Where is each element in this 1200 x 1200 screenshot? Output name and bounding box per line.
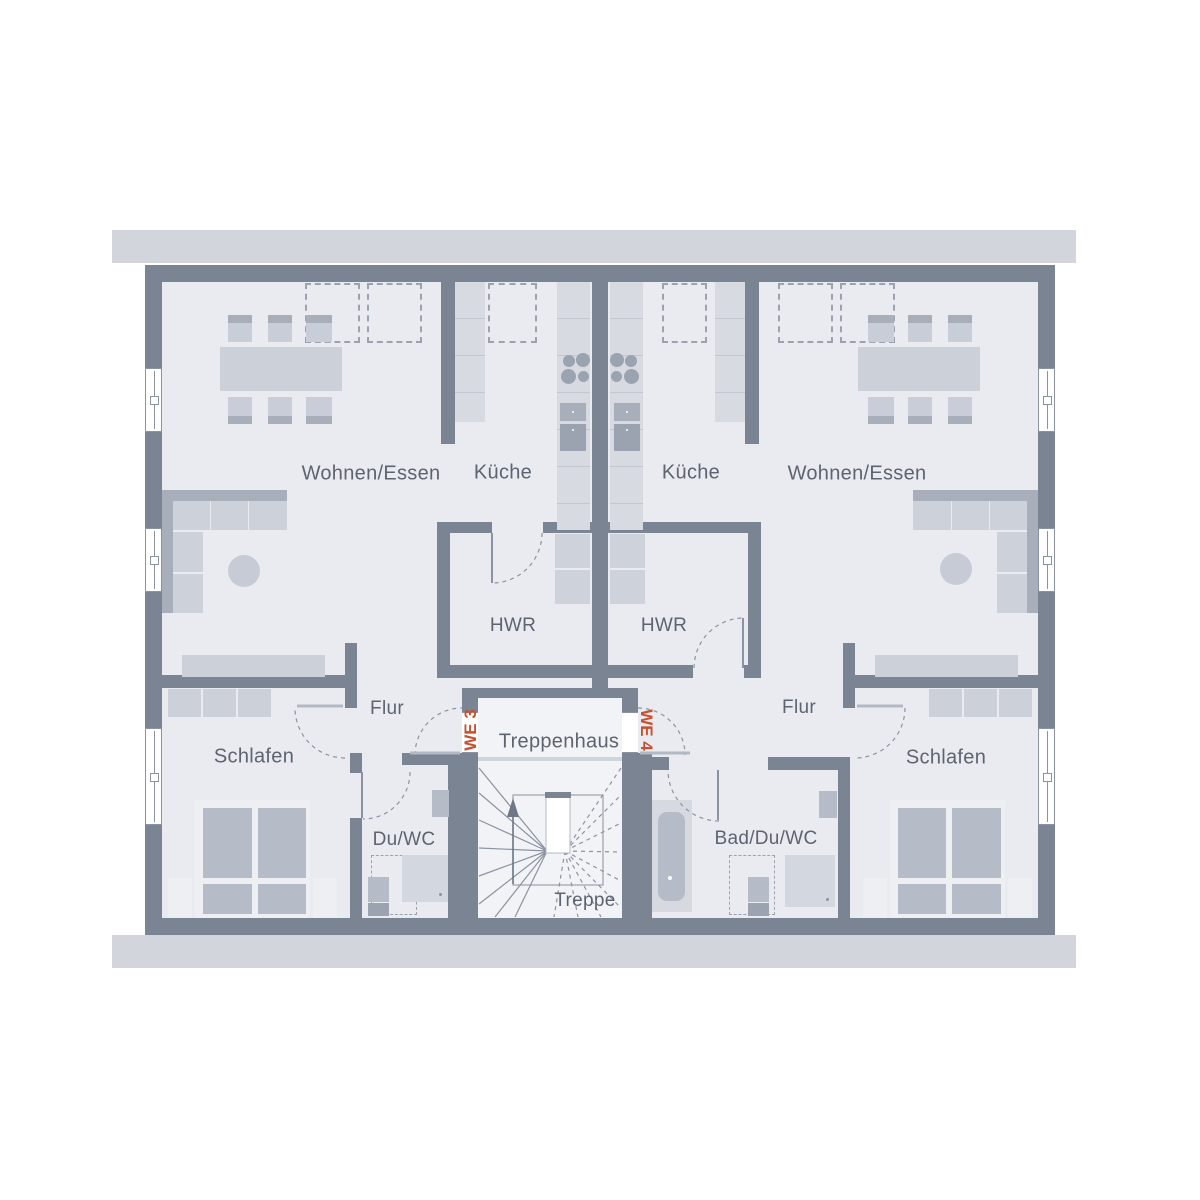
cooktop-burner-icon	[625, 355, 637, 367]
roof-window-icon	[662, 283, 707, 343]
window	[145, 728, 162, 825]
dryer	[610, 570, 645, 604]
unit-label-we4: WE 4	[636, 709, 656, 751]
room-label-bedroom-we4: Schlafen	[906, 747, 986, 770]
sofa-backrest	[1027, 501, 1038, 613]
kitchen-partition-we4	[745, 282, 759, 444]
outer-wall-right	[1038, 265, 1055, 935]
stair-landing-edge	[478, 757, 622, 761]
dining-chair	[908, 315, 932, 342]
outer-wall-left	[145, 265, 162, 935]
coffee-table	[228, 555, 260, 587]
toilet-bowl	[368, 903, 389, 916]
room-label-stairwell: Treppenhaus	[499, 731, 619, 754]
cooktop-burner-icon	[624, 369, 639, 384]
mattress-panel	[203, 808, 252, 878]
dining-chair	[948, 315, 972, 342]
bathtub-drain-icon	[668, 876, 672, 880]
sofa-cushion	[173, 501, 210, 530]
roof-window-icon	[367, 283, 422, 343]
hwr-we3-wall-bottom	[437, 665, 592, 678]
nightstand	[313, 878, 337, 918]
hwr-we4-wall-bottom-a	[592, 665, 693, 678]
kitchen-counter	[455, 282, 485, 422]
toilet-cistern	[368, 877, 389, 902]
stairwell-wall-left	[448, 753, 478, 918]
window	[1038, 528, 1055, 592]
mattress-panel	[952, 808, 1001, 878]
dining-chair	[306, 397, 332, 424]
roof-window-icon	[778, 283, 833, 343]
dining-chair	[868, 315, 894, 342]
bath-we3-wall-left-b	[350, 818, 362, 918]
room-label-utility-we3: HWR	[490, 615, 536, 637]
washer	[555, 534, 590, 568]
outer-wall-top	[145, 265, 1055, 282]
cooktop-burner-icon	[610, 353, 624, 367]
wardrobe	[929, 689, 962, 717]
sofa-cushion	[997, 532, 1027, 572]
bath-we4-wall-top-a	[652, 757, 669, 770]
sofa-cushion	[990, 501, 1027, 530]
wardrobe	[999, 689, 1032, 717]
sofa-cushion	[913, 501, 951, 530]
oven-drawer	[560, 403, 586, 421]
cooktop-burner-icon	[561, 369, 576, 384]
room-label-living-we4: Wohnen/Essen	[788, 463, 927, 486]
sofa-cushion	[211, 501, 248, 530]
nightstand	[863, 878, 887, 918]
roof-edge-bottom	[112, 935, 1076, 968]
dining-chair	[868, 397, 894, 424]
wardrobe	[203, 689, 236, 717]
kitchen-partition-we3	[441, 282, 455, 444]
wardrobe	[964, 689, 997, 717]
kitchen-counter	[715, 282, 745, 422]
mattress-panel	[258, 808, 306, 878]
washbasin	[819, 791, 837, 818]
oven-drawer	[614, 403, 640, 421]
toilet-bowl	[748, 903, 769, 916]
hwr-we4-wall-bottom-b	[744, 665, 761, 678]
dining-table	[220, 347, 342, 391]
room-label-living-we3: Wohnen/Essen	[302, 463, 441, 486]
shower-tray	[785, 855, 835, 907]
hall-wall-stub-we4	[843, 643, 855, 708]
stairwell-wall-right	[622, 753, 652, 918]
room-label-kitchen-we3: Küche	[474, 462, 532, 485]
floor-plan-page: Wohnen/Essen Küche HWR Flur Schlafen Du/…	[0, 0, 1200, 1200]
oven	[614, 424, 640, 451]
washbasin	[432, 790, 449, 817]
room-label-kitchen-we4: Küche	[662, 462, 720, 485]
unit-label-we3: WE 3	[461, 709, 481, 751]
bath-we4-wall-right	[838, 770, 850, 918]
dining-chair	[228, 397, 252, 424]
hwr-we3-wall-top-a	[437, 522, 492, 533]
sofa-cushion	[997, 574, 1027, 613]
bed	[195, 800, 310, 918]
dining-chair	[948, 397, 972, 424]
room-label-hall-we4: Flur	[782, 697, 816, 719]
bed	[890, 800, 1005, 918]
dining-table	[858, 347, 980, 391]
toilet-cistern	[748, 877, 769, 902]
wardrobe	[238, 689, 271, 717]
sofa-backrest	[913, 490, 1038, 501]
bath-we4-wall-top-b	[768, 757, 850, 770]
dining-chair	[268, 315, 292, 342]
sideboard	[875, 655, 1018, 677]
dryer	[555, 570, 590, 604]
cooktop-burner-icon	[578, 371, 589, 382]
hwr-we4-wall-right	[748, 522, 761, 678]
dining-chair	[908, 397, 932, 424]
sofa-backrest	[162, 490, 287, 501]
sofa-backrest	[162, 501, 173, 613]
window	[1038, 368, 1055, 432]
mattress-panel	[898, 808, 946, 878]
bed-foot-panel	[203, 884, 252, 914]
cooktop-burner-icon	[611, 371, 622, 382]
oven	[560, 424, 586, 451]
sofa-cushion	[249, 501, 287, 530]
bed-foot-panel	[898, 884, 946, 914]
hwr-we3-wall-left	[437, 522, 450, 678]
cooktop-burner-icon	[576, 353, 590, 367]
coffee-table	[940, 553, 972, 585]
wardrobe	[168, 689, 201, 717]
dining-chair	[306, 315, 332, 342]
bathtub-basin	[658, 812, 685, 901]
room-label-stairs: Treppe	[554, 890, 615, 912]
room-label-utility-we4: HWR	[641, 615, 687, 637]
bathtub	[652, 800, 692, 912]
room-label-bath-we3: Du/WC	[373, 829, 436, 851]
bath-we3-wall-left-a	[350, 753, 362, 773]
sideboard	[182, 655, 325, 677]
party-wall-center	[592, 282, 608, 698]
sofa-cushion	[173, 532, 203, 572]
dining-chair	[228, 315, 252, 342]
room-label-bedroom-we3: Schlafen	[214, 746, 294, 769]
outer-wall-bottom	[145, 918, 1055, 935]
bed-foot-panel	[258, 884, 306, 914]
hall-wall-stub-we3	[345, 643, 357, 708]
stairwell-wall-top	[478, 688, 622, 698]
room-label-hall-we3: Flur	[370, 698, 404, 720]
sofa-cushion	[952, 501, 989, 530]
washer	[610, 534, 645, 568]
window	[145, 528, 162, 592]
nightstand	[1008, 878, 1032, 918]
window	[145, 368, 162, 432]
dining-chair	[268, 397, 292, 424]
room-label-bath-we4: Bad/Du/WC	[714, 828, 817, 850]
cooktop-burner-icon	[563, 355, 575, 367]
roof-window-icon	[488, 283, 537, 343]
window	[1038, 728, 1055, 825]
shower-tray	[402, 855, 448, 902]
bed-foot-panel	[952, 884, 1001, 914]
sofa-cushion	[173, 574, 203, 613]
roof-edge-top	[112, 230, 1076, 263]
nightstand	[168, 878, 192, 918]
